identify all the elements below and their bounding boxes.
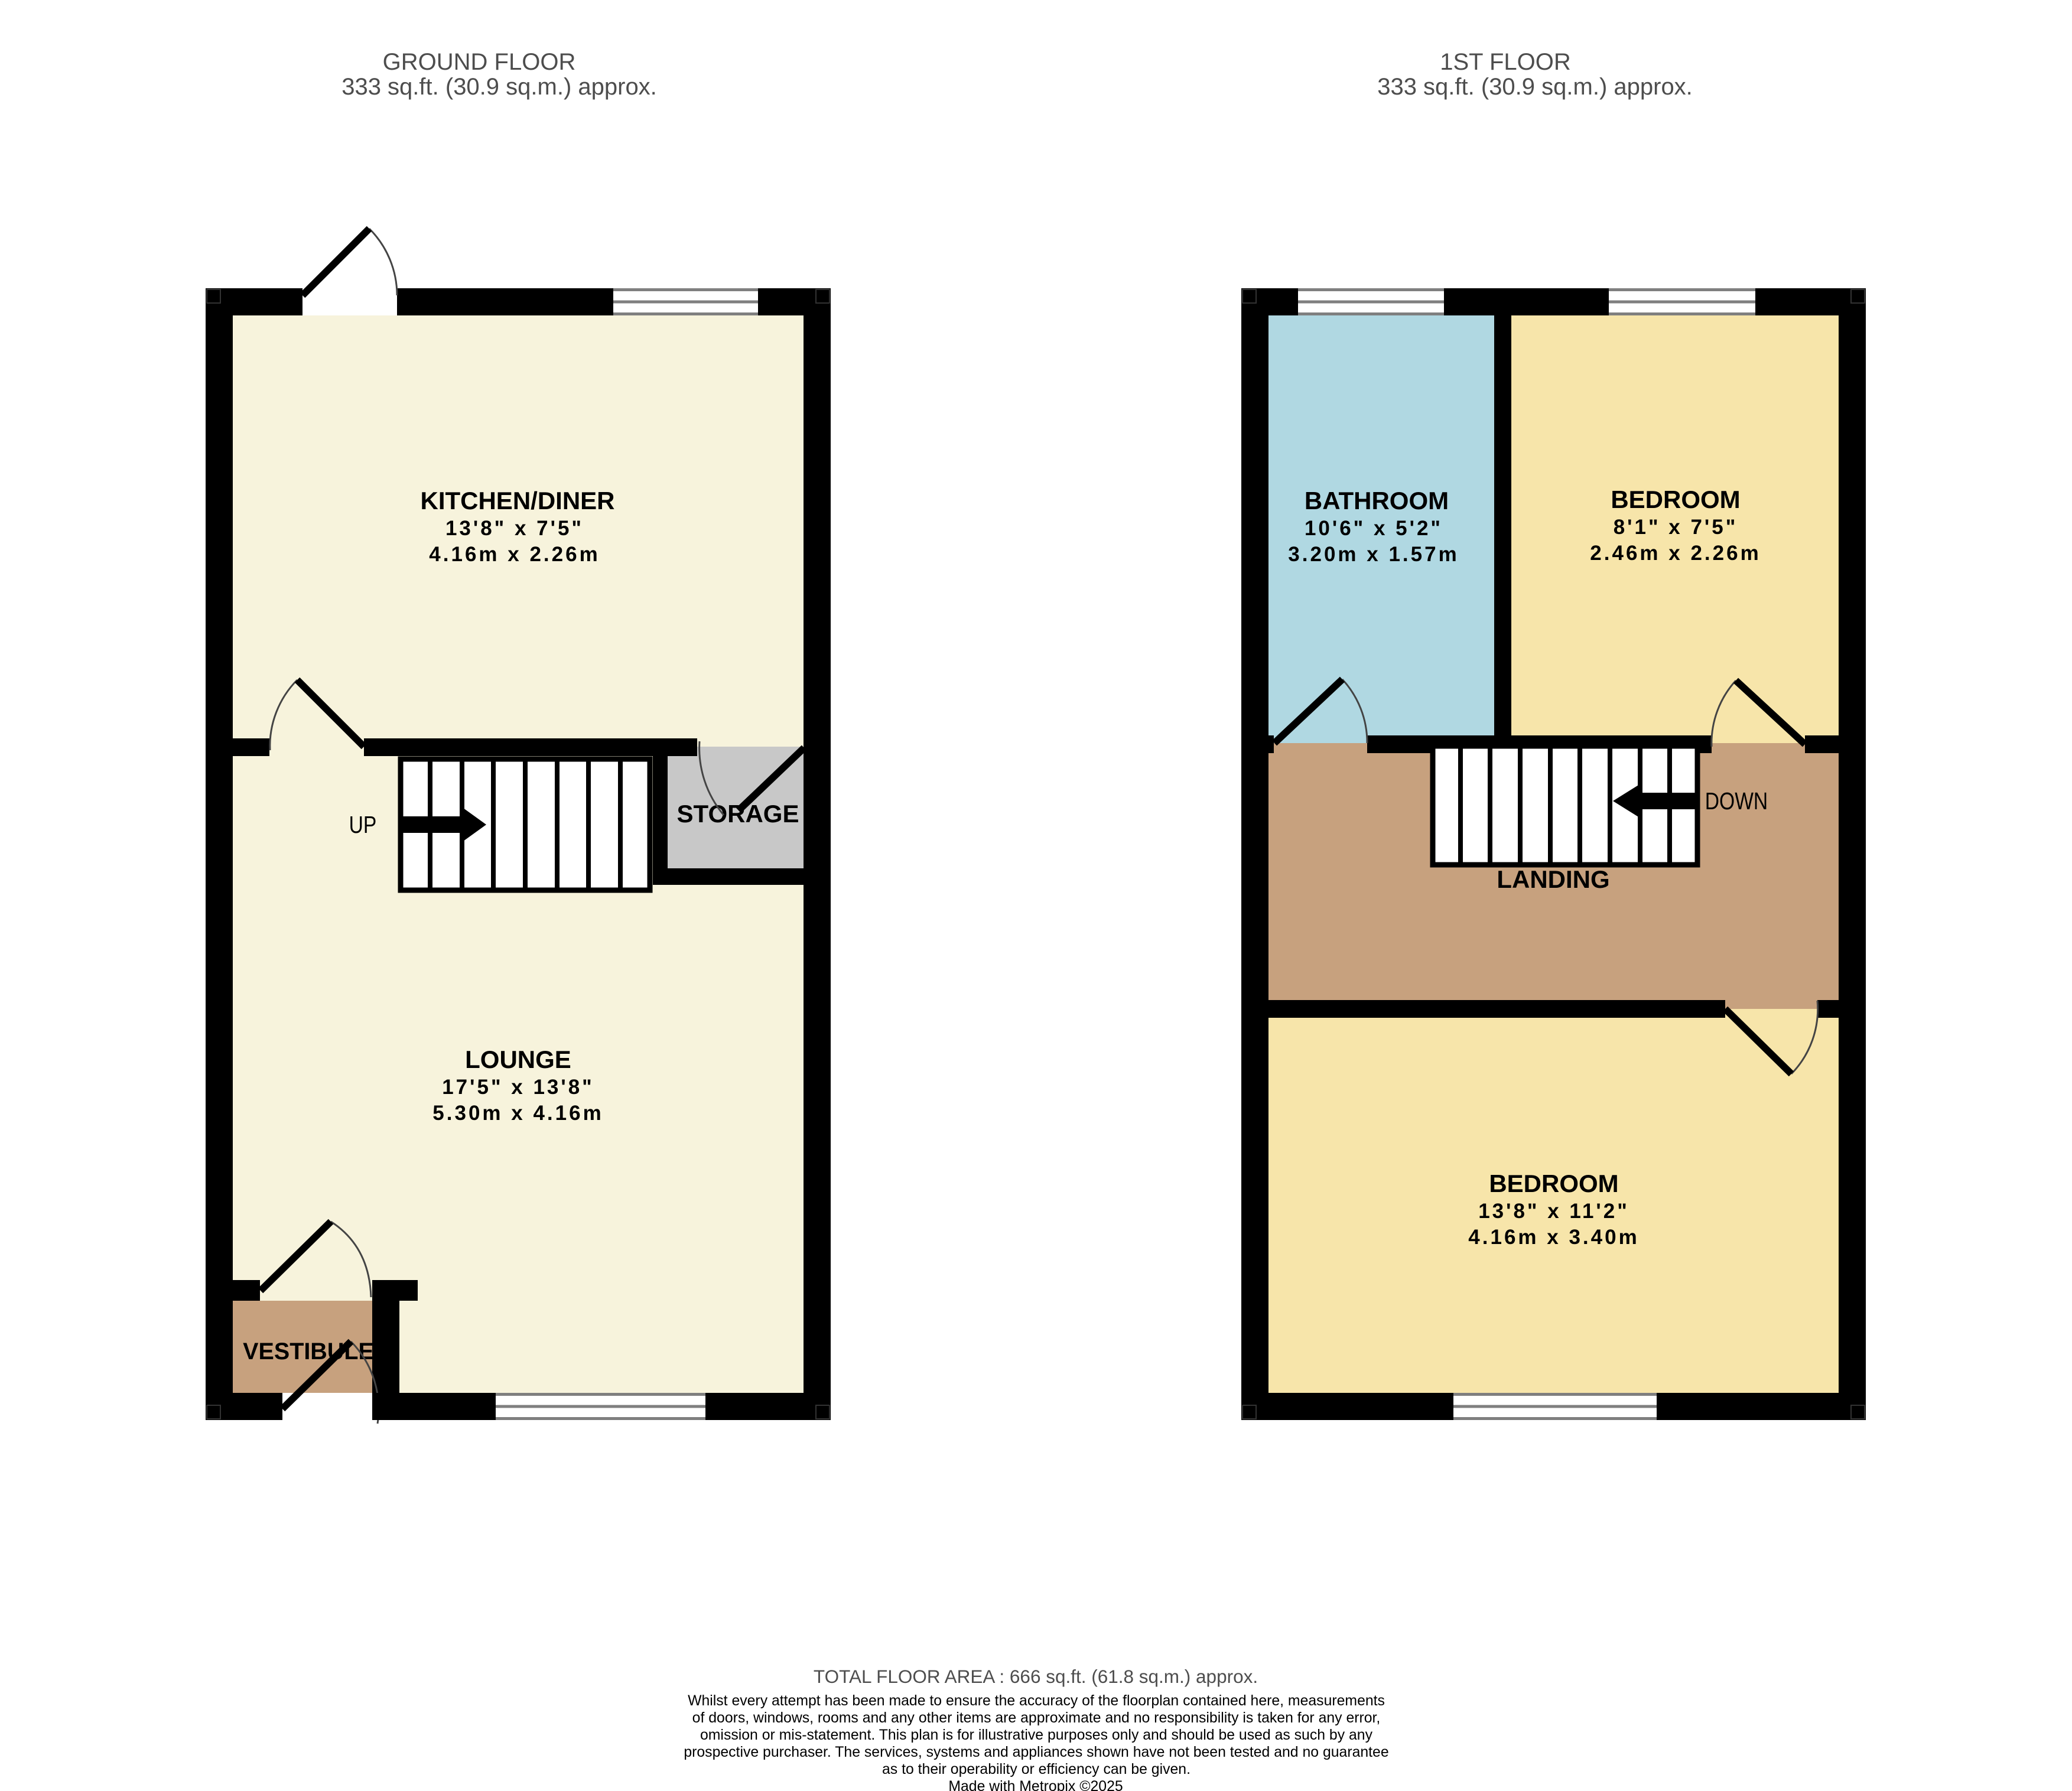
svg-text:GROUND FLOOR: GROUND FLOOR [383, 49, 576, 75]
svg-text:10'6" x 5'2": 10'6" x 5'2" [1305, 517, 1443, 540]
svg-text:Whilst every attempt has been: Whilst every attempt has been made to en… [688, 1693, 1385, 1709]
svg-text:13'8" x 7'5": 13'8" x 7'5" [445, 517, 584, 540]
svg-text:UP: UP [349, 811, 377, 838]
svg-text:17'5" x 13'8": 17'5" x 13'8" [442, 1076, 594, 1099]
svg-text:2.46m x 2.26m: 2.46m x 2.26m [1590, 542, 1761, 565]
svg-text:3.20m x 1.57m: 3.20m x 1.57m [1288, 543, 1459, 566]
svg-text:prospective purchaser. The ser: prospective purchaser. The services, sys… [684, 1744, 1388, 1760]
svg-text:DOWN: DOWN [1705, 787, 1768, 815]
svg-text:4.16m x 3.40m: 4.16m x 3.40m [1468, 1226, 1639, 1249]
svg-text:BATHROOM: BATHROOM [1305, 487, 1449, 514]
svg-text:LOUNGE: LOUNGE [465, 1046, 571, 1073]
svg-text:333 sq.ft. (30.9 sq.m.) approx: 333 sq.ft. (30.9 sq.m.) approx. [1377, 74, 1693, 100]
svg-text:BEDROOM: BEDROOM [1611, 486, 1740, 513]
svg-text:13'8" x 11'2": 13'8" x 11'2" [1478, 1200, 1629, 1223]
svg-text:STORAGE: STORAGE [677, 800, 799, 828]
svg-text:of doors, windows, rooms and a: of doors, windows, rooms and any other i… [692, 1710, 1381, 1726]
svg-text:TOTAL FLOOR AREA : 666 sq.ft.: TOTAL FLOOR AREA : 666 sq.ft. (61.8 sq.m… [814, 1666, 1258, 1687]
svg-text:333 sq.ft. (30.9 sq.m.) approx: 333 sq.ft. (30.9 sq.m.) approx. [341, 74, 657, 100]
svg-text:8'1" x 7'5": 8'1" x 7'5" [1614, 516, 1738, 539]
svg-text:KITCHEN/DINER: KITCHEN/DINER [420, 487, 614, 514]
svg-text:Made with Metropix ©2025: Made with Metropix ©2025 [948, 1779, 1123, 1791]
svg-text:as to their operability or eff: as to their operability or efficiency ca… [882, 1761, 1190, 1777]
svg-text:4.16m x 2.26m: 4.16m x 2.26m [429, 543, 600, 566]
svg-text:omission or mis-statement. Thi: omission or mis-statement. This plan is … [700, 1727, 1373, 1743]
svg-text:1ST FLOOR: 1ST FLOOR [1440, 49, 1571, 75]
svg-text:LANDING: LANDING [1497, 865, 1609, 893]
svg-text:VESTIBULE: VESTIBULE [243, 1339, 374, 1365]
svg-text:BEDROOM: BEDROOM [1489, 1170, 1618, 1197]
svg-text:5.30m x 4.16m: 5.30m x 4.16m [432, 1102, 603, 1125]
